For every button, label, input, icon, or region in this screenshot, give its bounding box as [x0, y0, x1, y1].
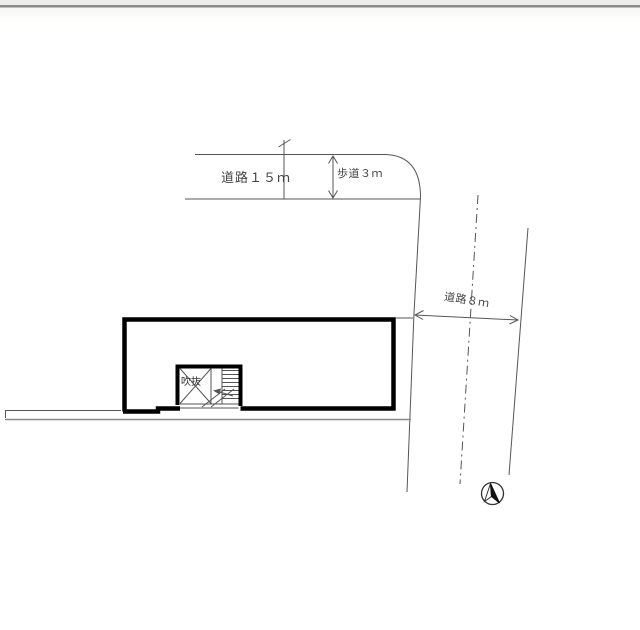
void-bay-threshold — [180, 404, 239, 408]
building-outline — [123, 320, 394, 412]
sidewalk-3m-label: 歩道３ｍ — [337, 169, 383, 180]
porch-strip-line — [6, 411, 122, 419]
stair-treads — [222, 371, 239, 399]
site-plan-canvas: 道路１５ｍ 歩道３ｍ 道路８ｍ 吹抜 — [0, 0, 640, 630]
road-lines — [185, 155, 528, 493]
road-centerline — [460, 195, 478, 484]
void-label: 吹抜 — [181, 378, 201, 388]
road-edge-top-and-right — [195, 155, 421, 493]
road-15m-label: 道路１５ｍ — [221, 171, 291, 184]
site-plan-drawing — [0, 0, 640, 630]
north-arrow-icon — [482, 483, 504, 505]
stair-detail — [202, 369, 239, 408]
road-right-edge — [509, 228, 528, 475]
